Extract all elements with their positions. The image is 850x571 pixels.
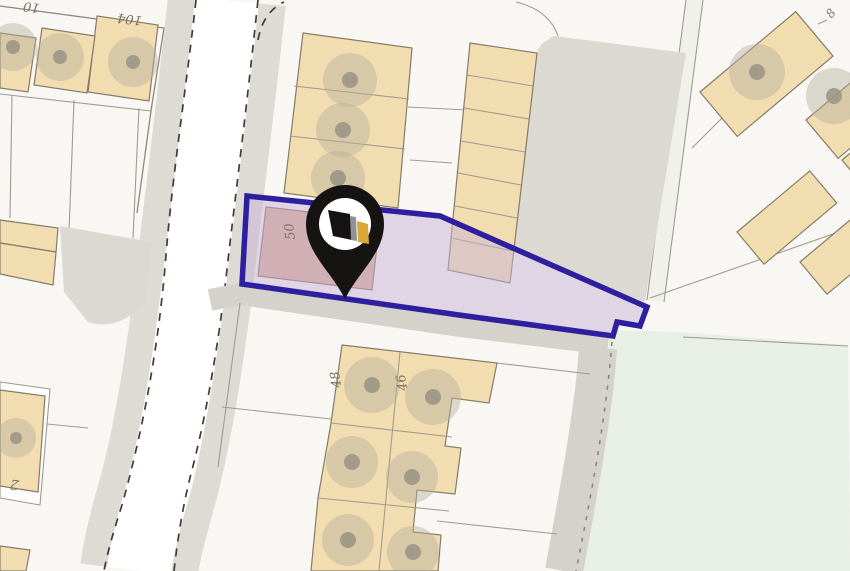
garage-strip-left	[0, 220, 152, 325]
house-number-48: 48	[328, 370, 346, 390]
house-number-104: 104	[116, 10, 142, 28]
building	[0, 546, 30, 571]
pin-logo-gold	[357, 221, 369, 244]
pin-logo-gray	[350, 216, 357, 241]
house-number-2: 2	[9, 475, 21, 492]
house-number-46: 46	[394, 373, 412, 393]
house-number-partial: 10	[22, 0, 40, 15]
property-map: 10 104 8 50 48 46 2	[0, 0, 850, 571]
housing-block-top-left	[0, 6, 164, 238]
road-corner-line	[516, 2, 558, 36]
house-number-8: 8	[823, 6, 839, 21]
plot-number-50: 50	[282, 222, 299, 240]
map-canvas[interactable]: 10 104 8 50 48 46 2	[0, 0, 850, 571]
